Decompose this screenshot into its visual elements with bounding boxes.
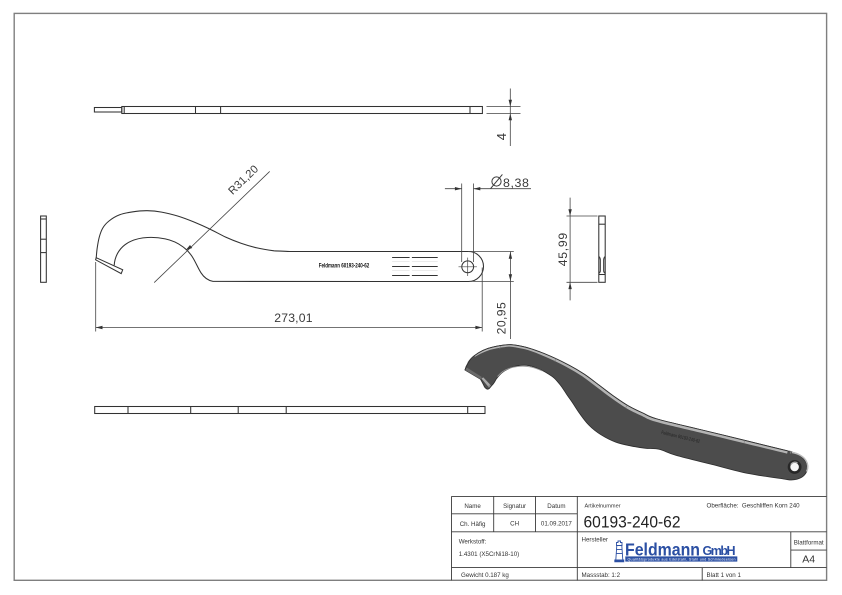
svg-text:Signatur: Signatur — [503, 503, 526, 510]
svg-text:Ch. Häfig: Ch. Häfig — [460, 521, 486, 528]
svg-text:Name: Name — [464, 503, 481, 510]
svg-text:Gewicht 0.187 kg: Gewicht 0.187 kg — [461, 572, 509, 579]
svg-text:8,38: 8,38 — [503, 176, 530, 190]
svg-text:45,99: 45,99 — [556, 232, 570, 266]
svg-text:CH: CH — [510, 521, 519, 528]
svg-text:Blatt 1 von 1: Blatt 1 von 1 — [707, 572, 742, 579]
svg-text:Artikelnummer: Artikelnummer — [585, 503, 621, 509]
svg-text:1.4301 (X5CrNi18-10): 1.4301 (X5CrNi18-10) — [459, 551, 520, 558]
svg-text:60193-240-62: 60193-240-62 — [584, 513, 681, 532]
svg-text:273,01: 273,01 — [274, 311, 312, 325]
svg-text:01.09.2017: 01.09.2017 — [541, 521, 573, 528]
svg-text:Massstab: 1:2: Massstab: 1:2 — [582, 572, 621, 579]
svg-text:Oberfläche: Geschliffen Korn: Oberfläche: Geschliffen Korn 240 — [707, 503, 801, 510]
svg-text:Hersteller: Hersteller — [582, 537, 608, 544]
svg-text:Blattformat: Blattformat — [794, 540, 824, 547]
svg-text:Qualitätsprodukte aus Edelstah: Qualitätsprodukte aus Edelstahl, Stahl u… — [628, 557, 736, 561]
svg-text:Datum: Datum — [547, 503, 565, 510]
svg-text:20,95: 20,95 — [494, 302, 508, 335]
svg-text:GmbH: GmbH — [703, 544, 736, 558]
svg-text:4: 4 — [494, 133, 509, 140]
svg-text:A4: A4 — [802, 554, 815, 566]
svg-text:Werkstoff:: Werkstoff: — [459, 539, 487, 546]
svg-text:Feldmann 60193-240-62: Feldmann 60193-240-62 — [319, 263, 370, 270]
